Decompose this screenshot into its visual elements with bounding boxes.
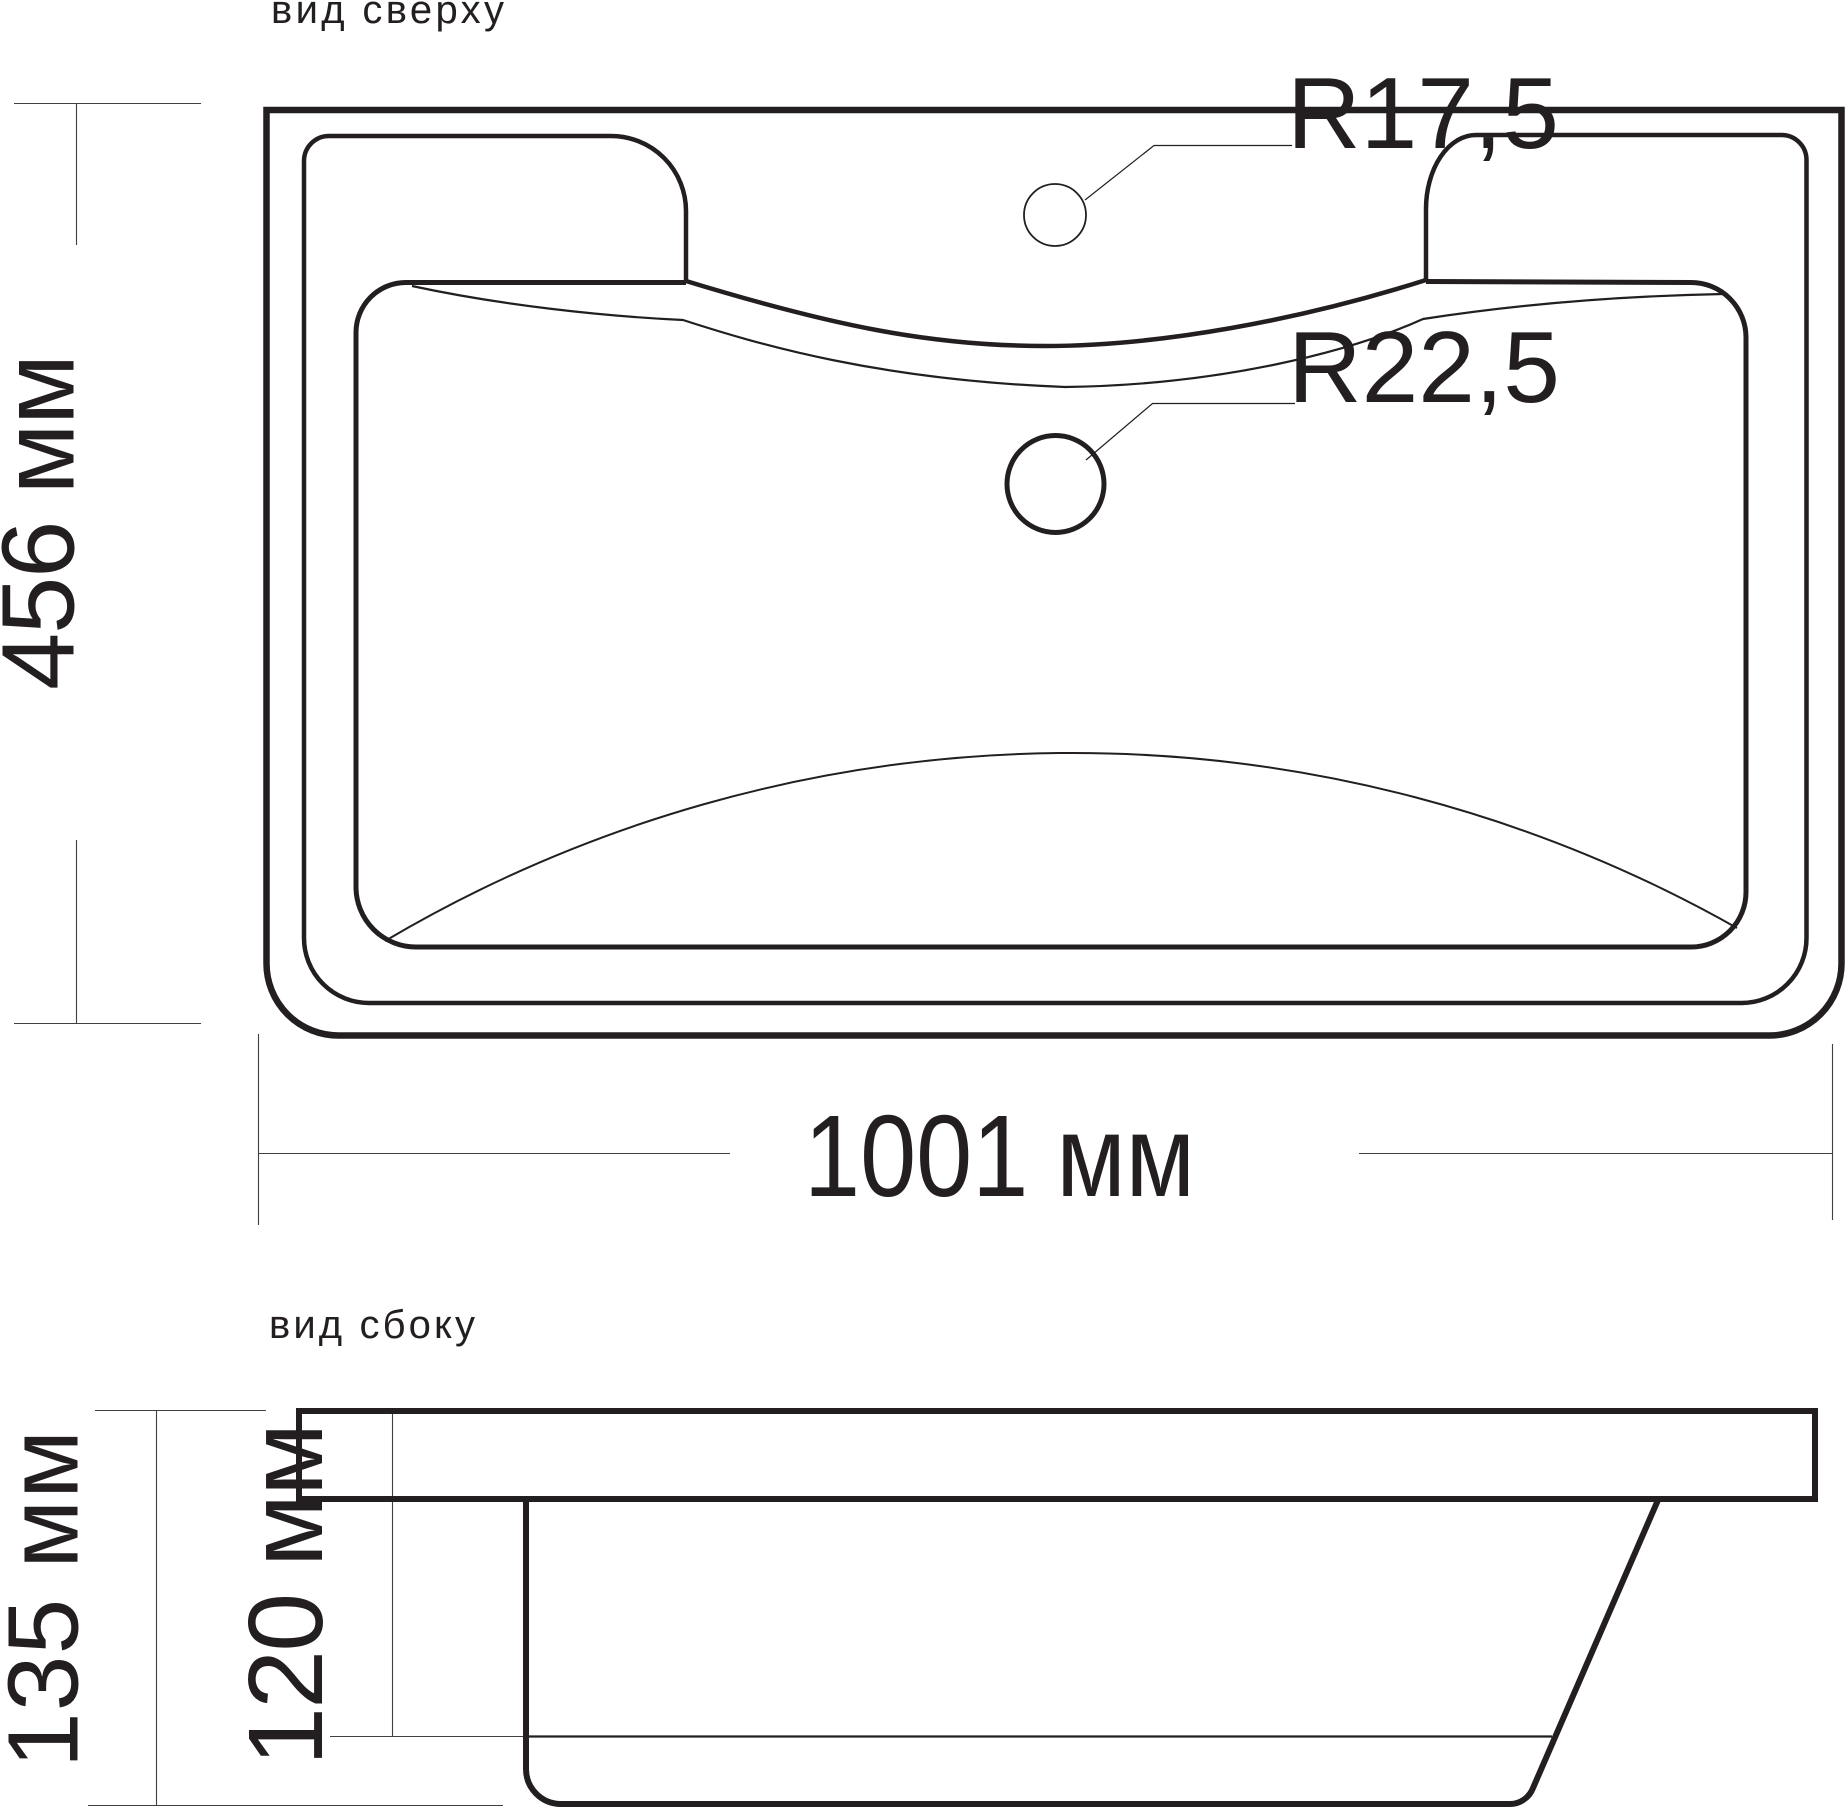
svg-text:вид сверху: вид сверху	[271, 0, 504, 32]
svg-text:120 мм: 120 мм	[227, 1423, 345, 1766]
svg-text:R22,5: R22,5	[1288, 312, 1560, 424]
svg-text:135 мм: 135 мм	[0, 1430, 100, 1768]
svg-text:456 мм: 456 мм	[0, 354, 96, 690]
svg-text:R17,5: R17,5	[1287, 58, 1559, 170]
svg-text:вид сбоку: вид сбоку	[269, 1303, 475, 1347]
svg-text:1001 мм: 1001 мм	[804, 1091, 1195, 1221]
